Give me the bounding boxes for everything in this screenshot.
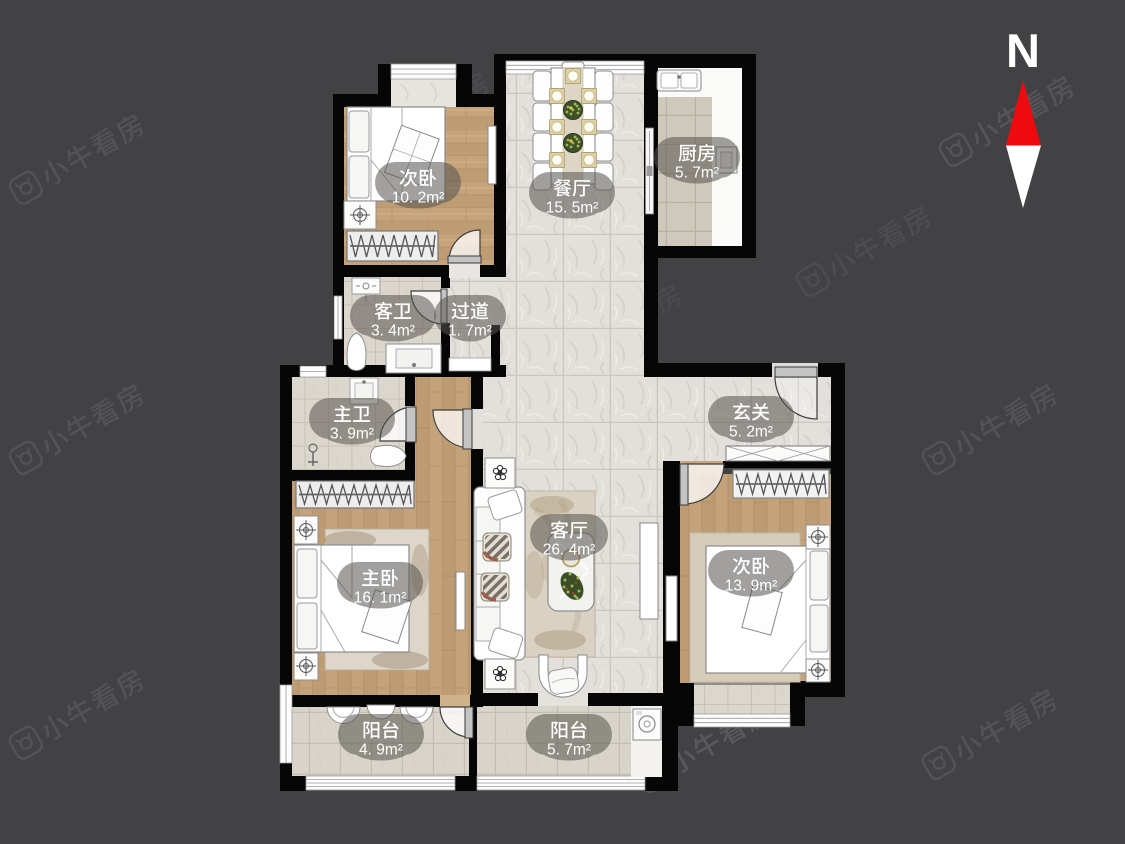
- svg-text:4. 9m²: 4. 9m²: [359, 742, 403, 759]
- svg-text:3. 9m²: 3. 9m²: [330, 426, 374, 443]
- svg-text:5. 7m²: 5. 7m²: [547, 742, 591, 759]
- svg-text:1. 7m²: 1. 7m²: [448, 323, 492, 340]
- svg-text:N: N: [1006, 24, 1040, 77]
- svg-text:13. 9m²: 13. 9m²: [725, 578, 778, 595]
- svg-text:10. 2m²: 10. 2m²: [392, 190, 445, 207]
- svg-text:3. 4m²: 3. 4m²: [371, 323, 415, 340]
- svg-text:15. 5m²: 15. 5m²: [546, 200, 599, 217]
- svg-text:16. 1m²: 16. 1m²: [354, 590, 407, 607]
- svg-text:5. 7m²: 5. 7m²: [675, 165, 719, 182]
- svg-text:5. 2m²: 5. 2m²: [729, 424, 773, 441]
- svg-text:26. 4m²: 26. 4m²: [543, 542, 596, 559]
